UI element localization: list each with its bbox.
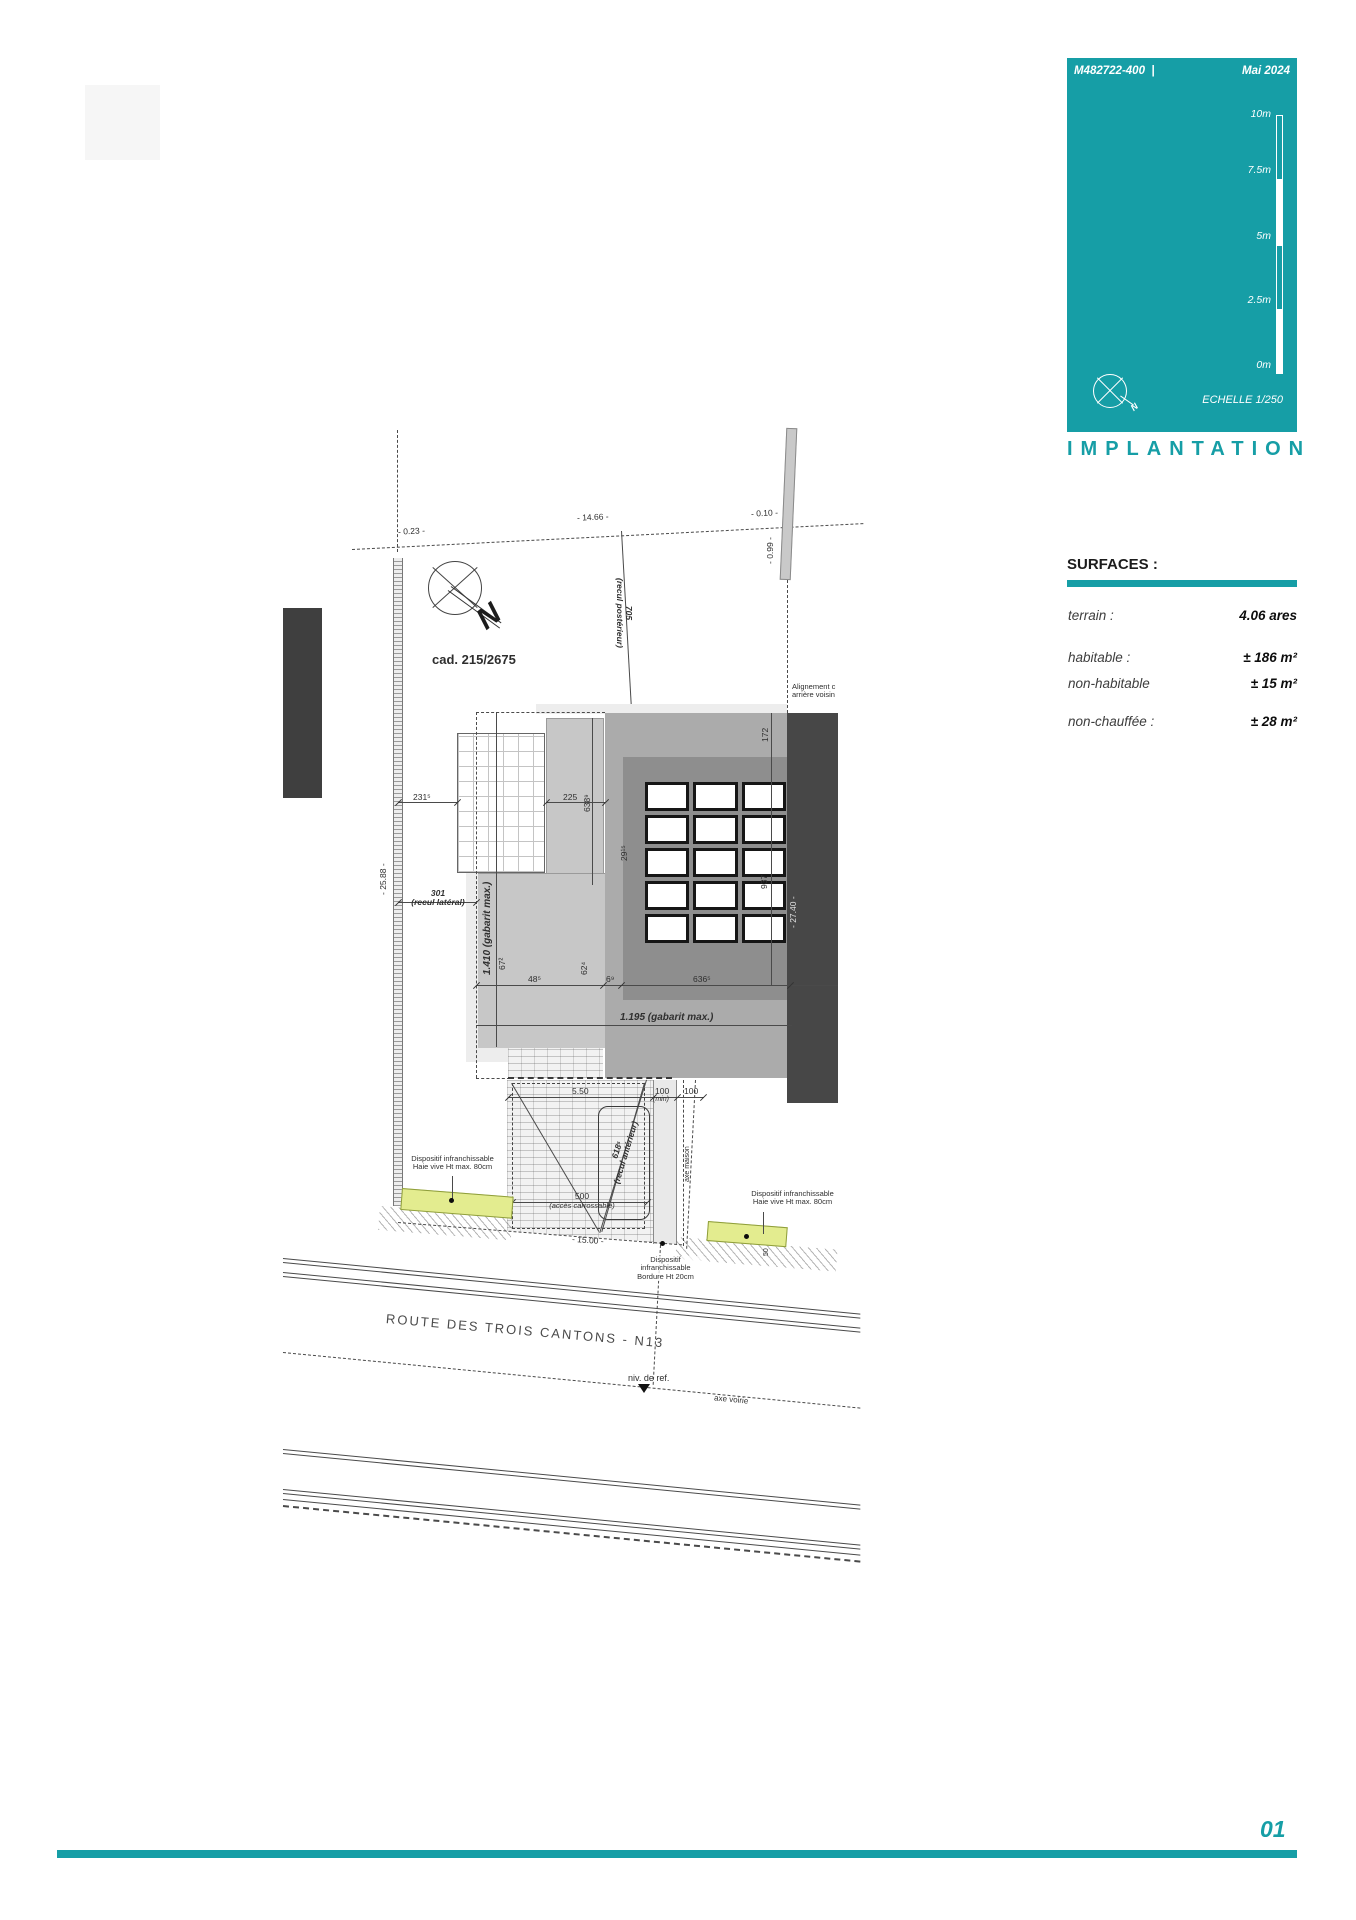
dim-line <box>496 712 497 1047</box>
dim-line <box>771 713 772 985</box>
boundary-bottom-line <box>283 1499 860 1556</box>
dim-500: 500 <box>575 1191 589 1201</box>
house-path <box>653 1080 677 1244</box>
rooflight-cell <box>645 881 689 910</box>
north-icon-letter: N <box>1129 401 1140 413</box>
dim-100-min: 100 <box>655 1087 669 1096</box>
dim-62-4: 62⁴ <box>580 962 589 975</box>
dim-225: 225 <box>563 793 577 802</box>
sheet-title: IMPLANTATION <box>1067 438 1307 461</box>
scalebar-label-7-5m: 7.5m <box>1231 164 1271 176</box>
dim-48-5: 48⁵ <box>528 975 541 984</box>
dim-line <box>476 1025 792 1026</box>
rooflight-cell <box>645 848 689 877</box>
dim-recul-lateral: 301 (recul latéral) <box>408 889 468 908</box>
separator: | <box>1151 65 1154 77</box>
north-icon <box>1093 374 1127 408</box>
dispositif-bordure: Dispositif infranchissable Bordure Ht 20… <box>628 1256 703 1281</box>
hedge-marker-dot <box>744 1234 749 1239</box>
access-dashed-line <box>508 1077 672 1079</box>
scalebar-seg-4 <box>1276 310 1283 374</box>
neighbour-building-left <box>283 608 322 798</box>
road-axis-line <box>283 1352 860 1409</box>
alignement-line2: arrière voisin <box>792 690 835 699</box>
dim-0-99: - 0.99 - <box>766 537 775 564</box>
scalebar-label-10m: 10m <box>1231 108 1271 120</box>
rooflight-cell <box>645 914 689 943</box>
dim-937: 937 <box>760 875 769 889</box>
dim-638-9: 638⁹ <box>583 794 592 812</box>
hedge-marker-dot <box>449 1198 454 1203</box>
dispositif-haie-left: Dispositif infranchissable Haie vive Ht … <box>405 1155 500 1172</box>
rooflight-cell <box>742 782 786 811</box>
surface-row-label: non-habitable <box>1068 676 1150 691</box>
surface-row-value: ± 15 m² <box>1251 676 1297 691</box>
page-number: 01 <box>1260 1816 1286 1843</box>
dim-0-23: - 0.23 - <box>398 526 425 537</box>
gabarit-1410: 1.410 (gabarit max.) <box>482 882 493 975</box>
dim-27-40: - 27.40 - <box>789 896 798 928</box>
footer-bar <box>57 1850 1297 1858</box>
dim-0-10: - 0.10 - <box>751 508 778 519</box>
axe-maison-label: axe maison <box>684 1146 692 1182</box>
surfaces-underline <box>1067 580 1297 587</box>
dim-705: 705 <box>624 606 634 620</box>
scalebar-seg-1 <box>1276 115 1283 180</box>
dim-15-00: - 15.00 - <box>572 1235 604 1247</box>
dispositif-line2: Haie vive Ht max. 80cm <box>413 1162 492 1171</box>
scale-text: ECHELLE 1/250 <box>1202 394 1283 406</box>
dim-6-9: 6⁹ <box>606 975 614 984</box>
bordure-line3: Bordure Ht 20cm <box>637 1272 694 1281</box>
dim-29-15: 29¹⁵ <box>620 845 629 861</box>
leader-line <box>763 1212 764 1234</box>
neighbour-wall-top-right <box>780 428 798 580</box>
cadastre-label: cad. 215/2675 <box>432 653 516 667</box>
rooflight-grid <box>645 782 786 943</box>
date-label: Mai 2024 <box>1242 65 1290 77</box>
road-edge-line <box>283 1489 860 1546</box>
dispositif-haie-right: Dispositif infranchissable Haie vive Ht … <box>745 1190 840 1207</box>
dim-recul-posterieur: 705 (recul postérieur) <box>614 578 633 648</box>
surface-row-value: 4.06 ares <box>1239 608 1297 623</box>
rooflight-cell <box>693 881 737 910</box>
dim-172: 172 <box>761 728 770 742</box>
surfaces-heading: SURFACES : <box>1067 556 1158 573</box>
project-ref: M482722-400 | <box>1074 65 1155 77</box>
surface-row-value: ± 28 m² <box>1251 714 1297 729</box>
dispositif-line2: Haie vive Ht max. 80cm <box>753 1197 832 1206</box>
dim-line <box>476 985 838 986</box>
scalebar-label-0m: 0m <box>1231 359 1271 371</box>
gabarit-line-v <box>476 712 477 1078</box>
dim-5-50: 5.50 <box>572 1087 589 1096</box>
dim-acces: 500 (accès carrossable) <box>542 1192 622 1211</box>
terrace-grid <box>457 733 545 873</box>
dim-100: 100 <box>684 1087 698 1096</box>
dim-636-5: 636⁵ <box>693 975 711 984</box>
plan-sheet: M482722-400 | Mai 2024 10m 7.5m 5m 2.5m … <box>0 0 1356 1920</box>
rooflight-cell <box>693 815 737 844</box>
surface-row-label: terrain : <box>1068 608 1114 623</box>
leader-line <box>452 1176 453 1200</box>
alignement-note: Alignement c arrière voisin <box>792 683 835 700</box>
rooflight-cell <box>693 914 737 943</box>
rooflight-cell <box>693 848 737 877</box>
surface-row-value: ± 186 m² <box>1243 650 1297 665</box>
dim-100-min-suffix: (min) <box>653 1096 669 1104</box>
dim-231-5: 231⁵ <box>413 793 431 802</box>
niv-ref-label: niv. de ref. <box>628 1374 669 1384</box>
recul-posterieur-label: (recul postérieur) <box>615 578 625 648</box>
recul-lateral-label: (recul latéral) <box>411 897 464 907</box>
surface-row-label: habitable : <box>1068 650 1130 665</box>
gabarit-line-h2 <box>476 1078 510 1079</box>
gabarit-1195: 1.195 (gabarit max.) <box>620 1012 713 1023</box>
rooflight-cell <box>742 848 786 877</box>
title-panel: M482722-400 | Mai 2024 10m 7.5m 5m 2.5m … <box>1067 58 1297 432</box>
niv-ref-marker <box>638 1384 650 1393</box>
scalebar-label-2-5m: 2.5m <box>1231 294 1271 306</box>
road-edge-line <box>283 1272 860 1329</box>
project-ref-text: M482722-400 <box>1074 65 1145 77</box>
bordure-marker-dot <box>660 1241 665 1246</box>
axe-voirie-label: axe voirie <box>714 1394 749 1406</box>
dim-tick <box>700 1094 707 1101</box>
dim-50: 50 <box>763 1248 771 1256</box>
road-name: ROUTE DES TROIS CANTONS - N13 <box>385 1312 664 1351</box>
scalebar-label-5m: 5m <box>1231 230 1271 242</box>
driveway-strip <box>508 1048 603 1078</box>
road-edge-line <box>283 1493 860 1550</box>
boundary-bottom-dashed <box>283 1505 861 1563</box>
dim-25-88: - 25.88 - <box>379 863 388 895</box>
scalebar-seg-2 <box>1276 180 1283 245</box>
rooflight-cell <box>693 782 737 811</box>
rooflight-cell <box>645 782 689 811</box>
rooflight-cell <box>645 815 689 844</box>
acces-carrossable-label: (accès carrossable) <box>549 1201 614 1210</box>
scalebar-seg-3 <box>1276 245 1283 310</box>
dim-67-2: 67² <box>498 958 507 970</box>
road-edge-line <box>283 1262 860 1319</box>
surface-row-label: non-chauffée : <box>1068 714 1154 729</box>
boundary-wall-left <box>393 558 403 1206</box>
rooflight-cell <box>742 815 786 844</box>
dim-14-66: - 14.66 - <box>577 512 609 523</box>
rooflight-cell <box>742 914 786 943</box>
logo-placeholder <box>85 85 160 160</box>
